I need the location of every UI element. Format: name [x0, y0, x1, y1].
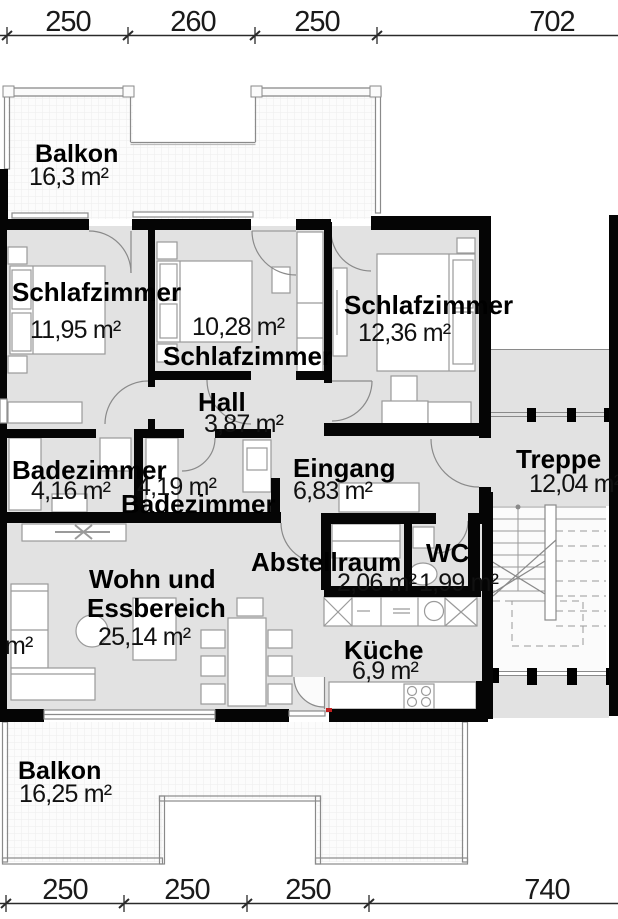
- svg-text:260: 260: [170, 6, 215, 38]
- svg-text:2,06 m²: 2,06 m²: [337, 569, 417, 597]
- svg-text:WC: WC: [426, 538, 470, 568]
- svg-text:12,04 m²: 12,04 m²: [529, 470, 618, 498]
- svg-text:11,95 m²: 11,95 m²: [30, 316, 121, 344]
- svg-text:25,14 m²: 25,14 m²: [98, 623, 191, 651]
- svg-text:250: 250: [45, 6, 90, 38]
- svg-text:Schlafzimmer: Schlafzimmer: [12, 277, 181, 307]
- svg-text:250: 250: [294, 6, 339, 38]
- svg-text:250: 250: [285, 874, 330, 906]
- svg-text:Essbereich: Essbereich: [87, 593, 226, 623]
- svg-text:3,87 m²: 3,87 m²: [204, 410, 284, 438]
- svg-text:Wohn und: Wohn und: [89, 564, 216, 594]
- svg-text:m²: m²: [5, 632, 33, 660]
- svg-text:250: 250: [164, 874, 209, 906]
- svg-text:16,25 m²: 16,25 m²: [19, 780, 112, 808]
- svg-text:10,28 m²: 10,28 m²: [192, 313, 285, 341]
- svg-text:250: 250: [42, 874, 87, 906]
- svg-text:Schlafzimmer: Schlafzimmer: [344, 290, 513, 320]
- svg-text:4,16 m²: 4,16 m²: [31, 477, 111, 505]
- svg-text:740: 740: [524, 874, 569, 906]
- svg-text:702: 702: [529, 6, 574, 38]
- svg-text:12,36 m²: 12,36 m²: [358, 319, 451, 347]
- svg-text:Schlafzimmer: Schlafzimmer: [163, 341, 332, 371]
- svg-text:1,99 m²: 1,99 m²: [419, 569, 499, 597]
- svg-text:4,19 m²: 4,19 m²: [137, 473, 217, 501]
- svg-text:16,3 m²: 16,3 m²: [29, 163, 109, 191]
- svg-text:6,83 m²: 6,83 m²: [293, 477, 373, 505]
- svg-text:6,9 m²: 6,9 m²: [352, 657, 419, 685]
